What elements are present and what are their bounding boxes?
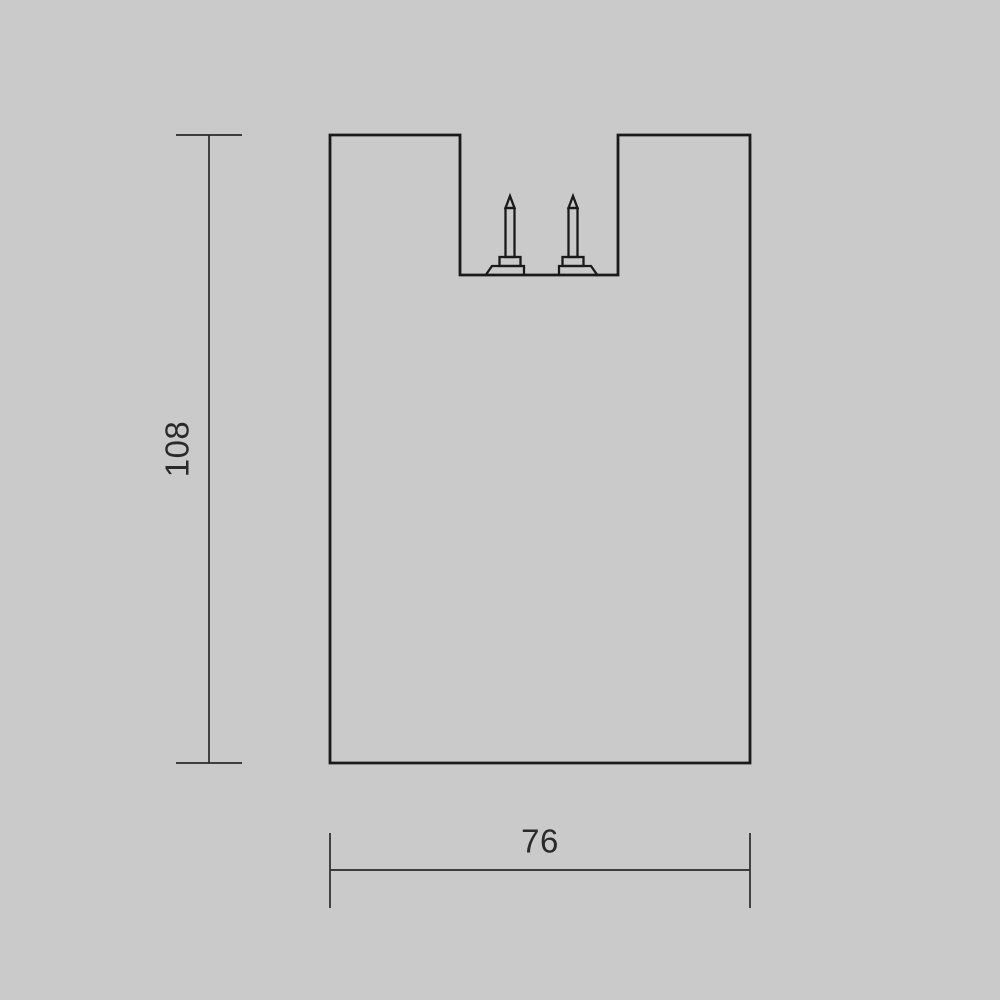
fixture-body <box>330 135 750 763</box>
width-dimension: 76 <box>330 823 750 909</box>
pin-left-tip-icon <box>506 196 515 208</box>
width-dimension-label: 76 <box>521 823 559 860</box>
height-dimension-label: 108 <box>159 421 196 478</box>
contact-pin-right <box>559 196 598 276</box>
pin-left-collar <box>500 257 521 266</box>
pin-right-shaft <box>569 208 578 257</box>
pin-left-shaft <box>506 208 515 257</box>
technical-drawing: 108 76 <box>0 0 1000 1000</box>
contact-pin-left <box>485 196 524 276</box>
pin-right-collar <box>563 257 584 266</box>
height-dimension: 108 <box>159 135 243 763</box>
drawing-canvas: 108 76 <box>0 0 1000 1000</box>
pin-right-tip-icon <box>569 196 578 208</box>
fixture-body-outline <box>330 135 750 763</box>
